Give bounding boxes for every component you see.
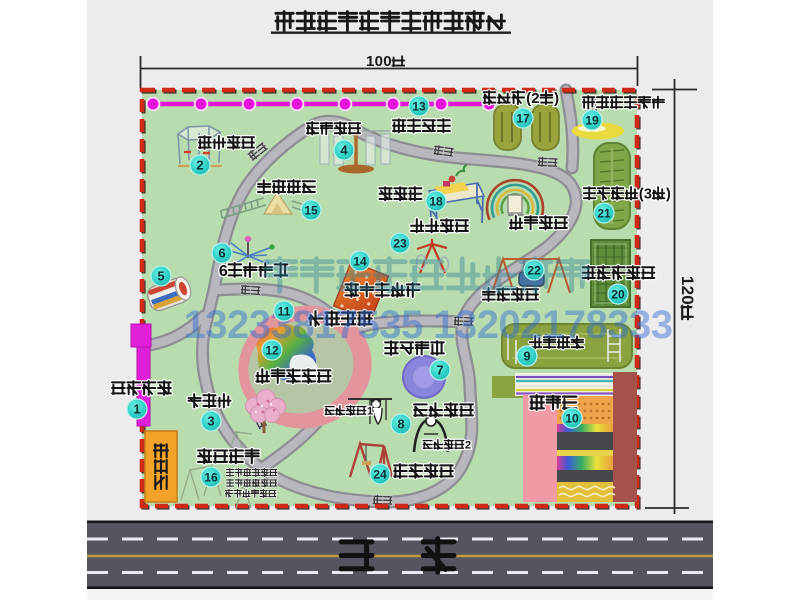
svg-text:7: 7 (436, 363, 443, 378)
svg-text:6: 6 (218, 246, 225, 261)
svg-text:1: 1 (678, 276, 697, 285)
svg-text:13233817535 13202178333: 13233817535 13202178333 (183, 303, 672, 347)
svg-text:): ) (554, 90, 559, 107)
svg-text:16: 16 (204, 470, 218, 484)
svg-text:22: 22 (527, 263, 541, 277)
svg-text:13: 13 (412, 99, 426, 113)
svg-text:23: 23 (393, 236, 407, 250)
svg-text:24: 24 (373, 467, 387, 481)
svg-text:3: 3 (207, 414, 214, 429)
svg-text:5: 5 (157, 269, 164, 284)
svg-text:10: 10 (565, 411, 579, 425)
svg-text:14: 14 (353, 254, 367, 268)
svg-text:20: 20 (611, 287, 625, 301)
svg-text:12: 12 (265, 343, 279, 357)
svg-text:9: 9 (523, 349, 530, 364)
svg-text:2: 2 (465, 440, 471, 452)
svg-text:15: 15 (304, 203, 318, 217)
svg-text:1: 1 (366, 53, 374, 70)
svg-text:8: 8 (397, 417, 404, 432)
svg-text:0: 0 (375, 53, 383, 70)
svg-text:2: 2 (196, 158, 203, 173)
svg-text:2: 2 (678, 286, 697, 295)
svg-text:1: 1 (133, 402, 140, 417)
svg-text:0: 0 (678, 295, 697, 304)
svg-text:19: 19 (585, 113, 599, 127)
svg-text:1: 1 (367, 406, 373, 418)
svg-text:3: 3 (644, 187, 652, 203)
svg-text:21: 21 (597, 206, 611, 220)
svg-text:18: 18 (429, 194, 443, 208)
svg-text:4: 4 (340, 143, 348, 158)
svg-text:0: 0 (383, 53, 391, 70)
svg-text:17: 17 (516, 111, 530, 125)
svg-text:): ) (666, 187, 671, 203)
svg-text:6: 6 (219, 263, 228, 280)
svg-text:2: 2 (531, 90, 539, 107)
svg-text:11: 11 (278, 304, 291, 318)
